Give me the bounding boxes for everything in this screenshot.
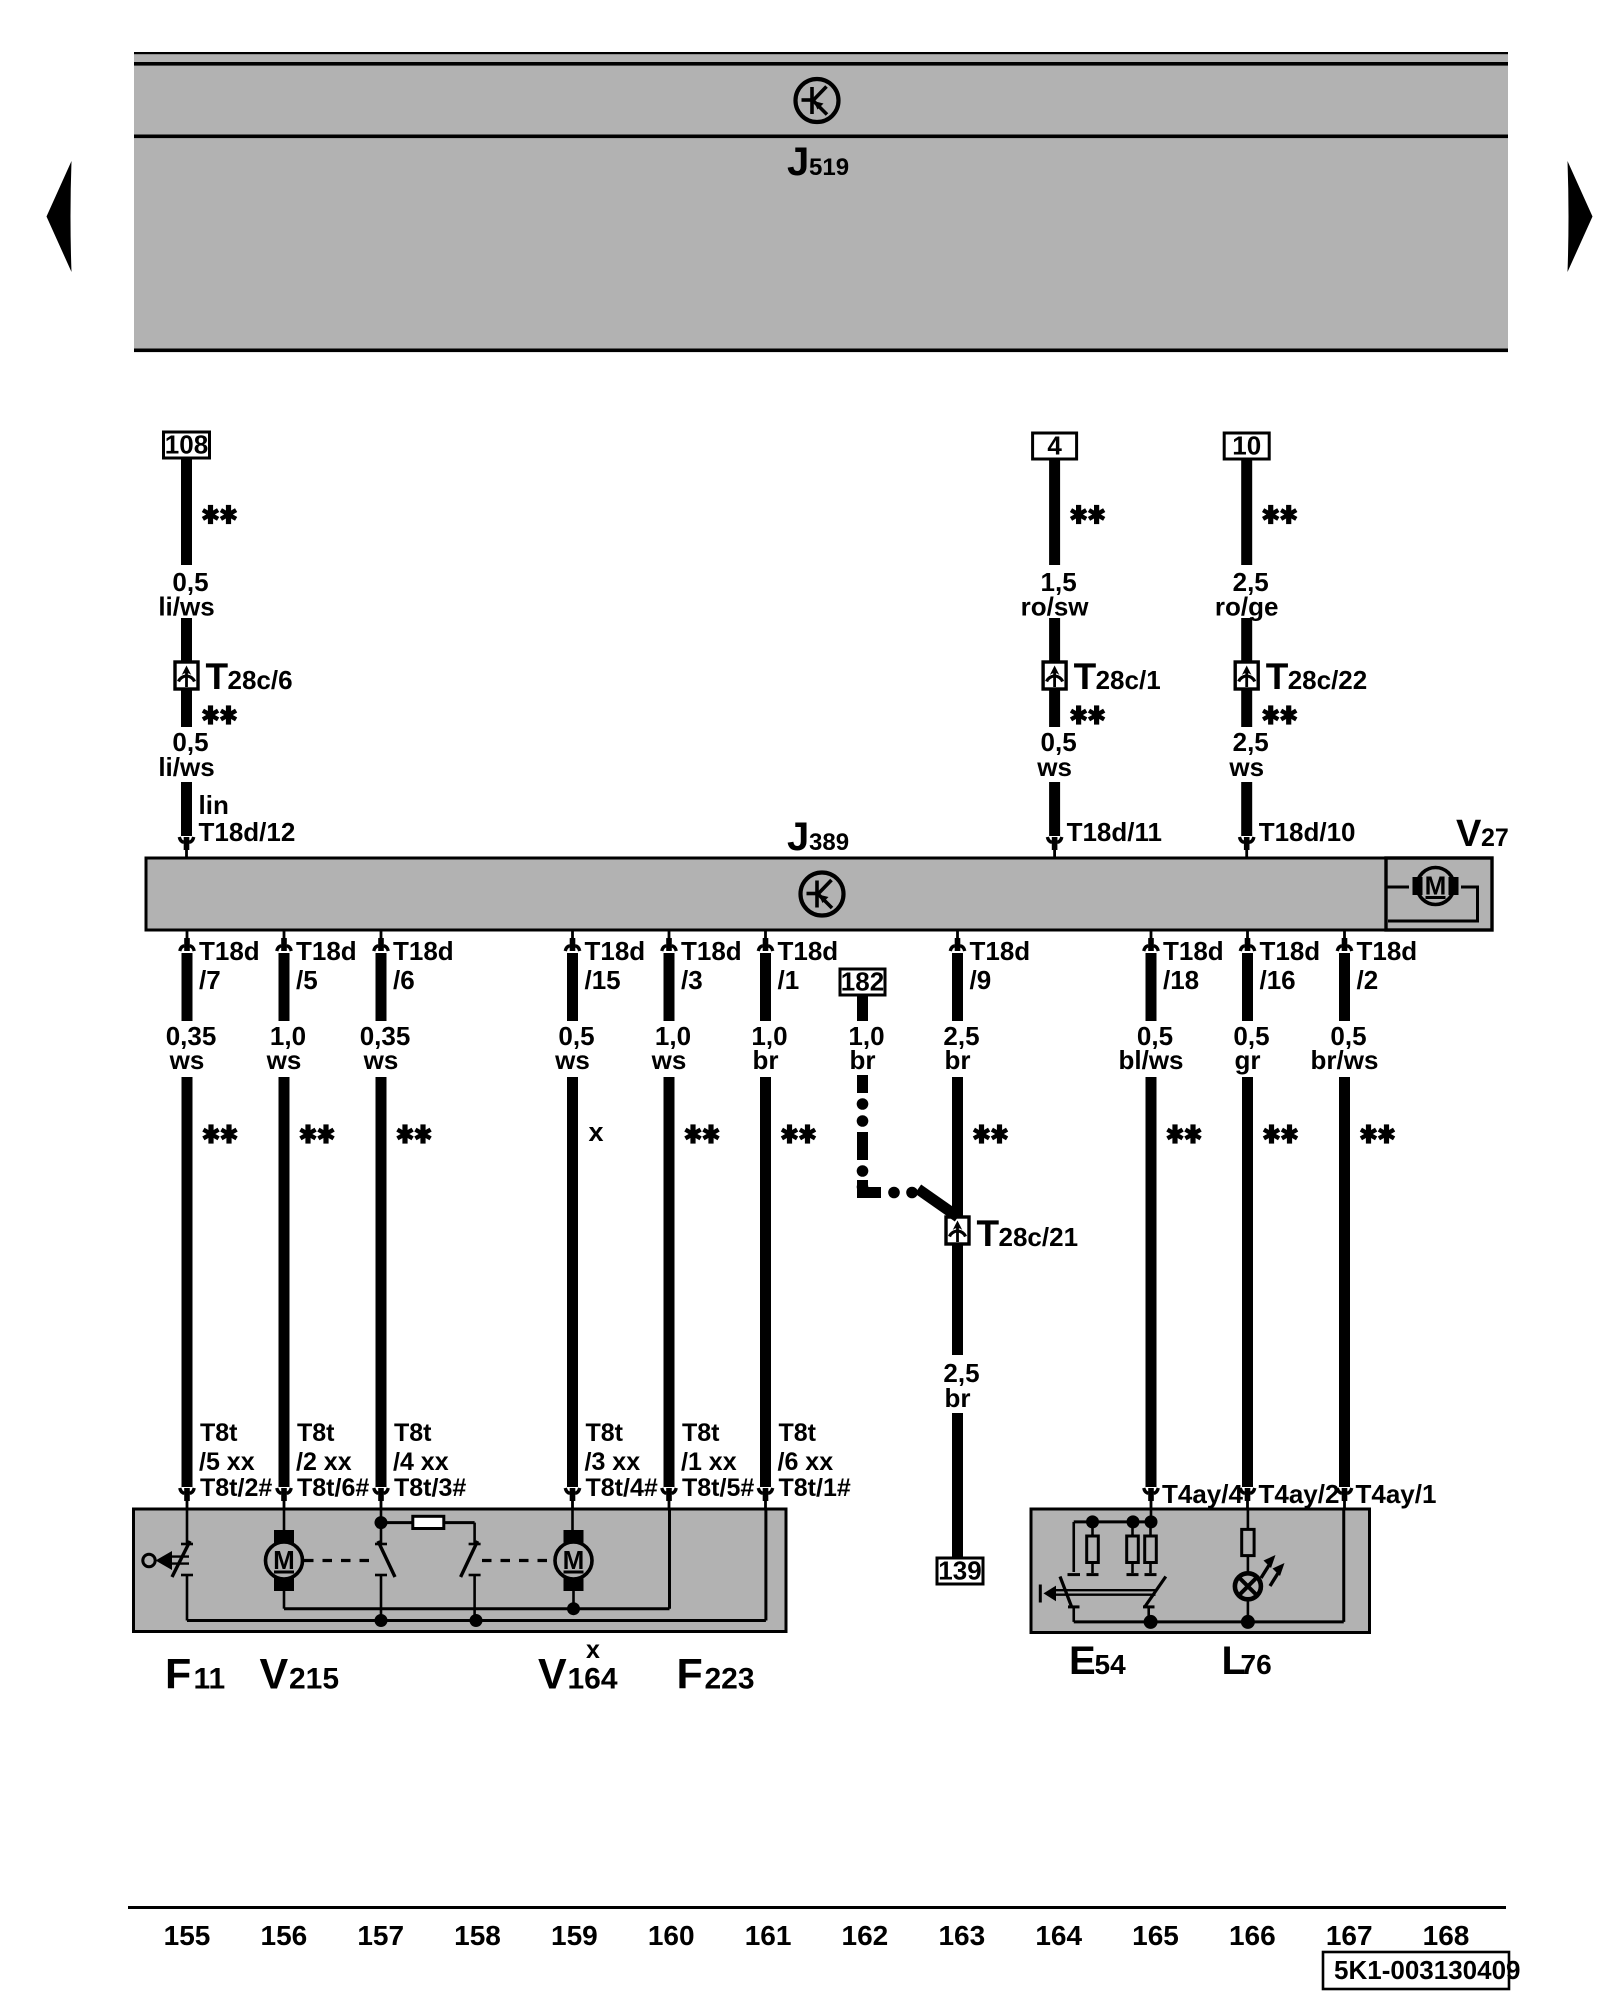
svg-text:T4ay/2: T4ay/2	[1259, 1479, 1340, 1509]
svg-text:T4ay/4: T4ay/4	[1162, 1479, 1243, 1509]
svg-text:T: T	[1266, 656, 1289, 697]
svg-text:T8t: T8t	[682, 1419, 720, 1447]
svg-text:ws: ws	[1228, 752, 1264, 782]
svg-text:161: 161	[745, 1920, 792, 1951]
svg-text:br/ws: br/ws	[1311, 1045, 1379, 1075]
svg-text:T18d: T18d	[393, 936, 454, 966]
svg-text:/6: /6	[393, 965, 415, 995]
svg-text:T: T	[977, 1213, 1000, 1254]
svg-text:215: 215	[289, 1663, 339, 1696]
svg-text:T18d: T18d	[681, 936, 742, 966]
svg-text:108: 108	[165, 430, 208, 460]
svg-text:T18d/10: T18d/10	[1259, 817, 1356, 847]
svg-text:11: 11	[194, 1663, 226, 1696]
svg-text:T8t/1#: T8t/1#	[779, 1474, 851, 1502]
svg-text:28c/1: 28c/1	[1096, 665, 1161, 695]
svg-text:V: V	[538, 1651, 567, 1699]
svg-text:T18d/12: T18d/12	[199, 817, 296, 847]
svg-text:389: 389	[809, 829, 849, 856]
svg-text:li/ws: li/ws	[158, 592, 214, 622]
svg-text:li/ws: li/ws	[158, 752, 214, 782]
svg-text:T18d: T18d	[296, 936, 357, 966]
svg-text:ro/sw: ro/sw	[1021, 592, 1090, 622]
svg-text:T18d: T18d	[778, 936, 839, 966]
svg-text:T8t: T8t	[394, 1419, 432, 1447]
svg-text:ws: ws	[554, 1045, 590, 1075]
svg-text:/3 xx: /3 xx	[585, 1448, 641, 1476]
svg-text:165: 165	[1132, 1920, 1179, 1951]
svg-text:139: 139	[938, 1556, 981, 1586]
svg-text:/18: /18	[1163, 965, 1199, 995]
svg-text:167: 167	[1326, 1920, 1373, 1951]
svg-text:28c/21: 28c/21	[999, 1222, 1079, 1252]
svg-text:T8t: T8t	[586, 1419, 624, 1447]
svg-text:/4 xx: /4 xx	[393, 1448, 449, 1476]
svg-text:223: 223	[705, 1663, 755, 1696]
svg-text:/2 xx: /2 xx	[296, 1448, 352, 1476]
svg-text:T: T	[1074, 656, 1097, 697]
svg-text:164: 164	[568, 1663, 618, 1696]
svg-text:T8t/2#: T8t/2#	[200, 1474, 272, 1502]
svg-text:/5 xx: /5 xx	[199, 1448, 255, 1476]
svg-text:T18d: T18d	[1163, 936, 1224, 966]
svg-text:T8t/6#: T8t/6#	[297, 1474, 369, 1502]
svg-text:lin: lin	[199, 790, 229, 820]
svg-text:T18d: T18d	[199, 936, 260, 966]
svg-text:T8t: T8t	[200, 1419, 238, 1447]
svg-text:x: x	[586, 1636, 600, 1664]
svg-text:162: 162	[842, 1920, 889, 1951]
svg-text:T8t/5#: T8t/5#	[682, 1474, 754, 1502]
svg-text:/1 xx: /1 xx	[681, 1448, 737, 1476]
svg-text:F: F	[165, 1651, 191, 1699]
svg-text:T8t/3#: T8t/3#	[394, 1474, 466, 1502]
svg-text:T8t/4#: T8t/4#	[586, 1474, 658, 1502]
svg-text:ws: ws	[1036, 752, 1072, 782]
svg-text:/1: /1	[778, 965, 800, 995]
svg-text:T18d: T18d	[970, 936, 1031, 966]
svg-text:T18d: T18d	[1357, 936, 1418, 966]
svg-text:28c/22: 28c/22	[1288, 665, 1368, 695]
svg-text:T: T	[206, 656, 229, 697]
svg-text:/6 xx: /6 xx	[778, 1448, 834, 1476]
svg-text:T4ay/1: T4ay/1	[1356, 1479, 1437, 1509]
svg-text:164: 164	[1035, 1920, 1082, 1951]
svg-text:bl/ws: bl/ws	[1118, 1045, 1183, 1075]
svg-text:br: br	[945, 1045, 971, 1075]
svg-text:gr: gr	[1235, 1045, 1261, 1075]
svg-text:/3: /3	[681, 965, 703, 995]
svg-text:J: J	[787, 140, 809, 184]
svg-text:/5: /5	[296, 965, 318, 995]
svg-text:182: 182	[841, 967, 884, 997]
svg-text:J: J	[787, 815, 809, 859]
svg-text:ws: ws	[363, 1045, 399, 1075]
svg-text:157: 157	[357, 1920, 404, 1951]
svg-text:x: x	[589, 1117, 604, 1147]
svg-text:/16: /16	[1260, 965, 1296, 995]
svg-text:54: 54	[1095, 1649, 1127, 1680]
svg-text:br: br	[850, 1045, 876, 1075]
svg-text:ro/ge: ro/ge	[1215, 592, 1279, 622]
svg-text:/2: /2	[1357, 965, 1379, 995]
svg-text:28c/6: 28c/6	[228, 665, 293, 695]
svg-text:27: 27	[1481, 824, 1509, 852]
svg-text:ws: ws	[266, 1045, 302, 1075]
svg-text:519: 519	[809, 154, 849, 181]
svg-text:T18d: T18d	[1260, 936, 1321, 966]
svg-text:168: 168	[1423, 1920, 1470, 1951]
svg-text:E: E	[1069, 1639, 1096, 1683]
svg-text:159: 159	[551, 1920, 598, 1951]
svg-text:T18d: T18d	[585, 936, 646, 966]
svg-text:10: 10	[1232, 431, 1261, 461]
svg-text:F: F	[677, 1651, 703, 1699]
svg-text:4: 4	[1047, 431, 1062, 461]
svg-text:/9: /9	[970, 965, 992, 995]
svg-text:160: 160	[648, 1920, 695, 1951]
svg-text:ws: ws	[169, 1045, 205, 1075]
svg-text:T8t: T8t	[779, 1419, 817, 1447]
svg-text:76: 76	[1241, 1649, 1272, 1680]
svg-text:156: 156	[261, 1920, 308, 1951]
svg-text:ws: ws	[651, 1045, 687, 1075]
svg-text:V: V	[1456, 813, 1482, 855]
svg-text:158: 158	[454, 1920, 501, 1951]
svg-text:br: br	[753, 1045, 779, 1075]
svg-text:/15: /15	[585, 965, 621, 995]
svg-text:5K1-003130409: 5K1-003130409	[1334, 1955, 1521, 1985]
svg-text:166: 166	[1229, 1920, 1276, 1951]
svg-text:/7: /7	[199, 965, 221, 995]
svg-text:163: 163	[938, 1920, 985, 1951]
svg-text:T18d/11: T18d/11	[1067, 817, 1162, 847]
svg-text:V: V	[260, 1651, 289, 1699]
svg-text:br: br	[945, 1383, 971, 1413]
svg-text:155: 155	[164, 1920, 211, 1951]
svg-text:T8t: T8t	[297, 1419, 335, 1447]
